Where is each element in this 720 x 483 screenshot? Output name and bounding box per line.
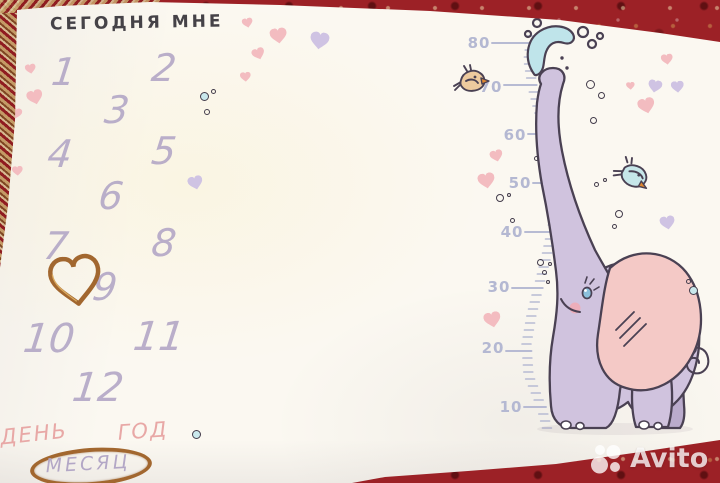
bubble-icon	[542, 270, 547, 275]
ruler-label-30: 30	[488, 278, 511, 296]
heart-icon	[659, 215, 676, 231]
ruler-label-50: 50	[509, 174, 532, 192]
elephant-illustration	[536, 68, 708, 435]
heart-icon	[240, 72, 252, 83]
bubble-icon	[612, 224, 617, 229]
word-month: МЕСЯЦ	[45, 451, 131, 477]
bubble-icon	[598, 92, 605, 99]
bubble-icon	[537, 259, 544, 266]
milestone-blanket: СЕГОДНЯ МНЕ 1 2 3 4 5 6 7 8 9 10 11 12 8…	[0, 0, 720, 483]
water-splash-icon	[525, 19, 603, 75]
heart-icon	[647, 79, 663, 94]
ruler-label-60: 60	[504, 126, 527, 144]
heart-icon	[626, 82, 636, 91]
bubble-icon	[192, 430, 201, 439]
bubble-icon	[546, 280, 550, 284]
milestone-blanket-photo: СЕГОДНЯ МНЕ 1 2 3 4 5 6 7 8 9 10 11 12 8…	[0, 0, 720, 483]
bubble-icon	[211, 89, 216, 94]
heart-icon	[670, 80, 684, 93]
bubble-icon	[507, 193, 511, 197]
bubble-icon	[534, 156, 539, 161]
heart-icon	[660, 53, 673, 66]
heart-icon	[309, 31, 330, 51]
bubble-icon	[686, 279, 691, 284]
bubble-icon	[548, 262, 552, 266]
bubble-icon	[594, 182, 599, 187]
bubble-icon	[590, 117, 597, 124]
bird-icon	[611, 153, 655, 193]
ruler-label-40: 40	[501, 223, 524, 241]
bubble-icon	[603, 178, 607, 182]
bubble-icon	[200, 92, 209, 101]
bubble-icon	[615, 210, 623, 218]
heart-icon	[24, 63, 37, 75]
bubble-icon	[496, 194, 504, 202]
watermark-text: Avito	[630, 443, 708, 474]
bubble-icon	[689, 286, 698, 295]
heart-icon	[477, 172, 497, 191]
avito-logo-icon	[590, 441, 624, 475]
ruler-label-20: 20	[482, 339, 505, 357]
ruler-label-80: 80	[468, 34, 491, 52]
heart-icon	[12, 166, 24, 177]
bubble-icon	[510, 218, 515, 223]
avito-watermark: Avito	[590, 441, 708, 475]
bubble-icon	[586, 80, 595, 89]
ruler-label-10: 10	[500, 398, 523, 416]
growth-chart-scene: 80 70 60 50 40 30 20 10	[0, 0, 720, 483]
word-year: ГОД	[117, 417, 169, 444]
gold-wire-heart-icon	[48, 254, 102, 307]
bubble-icon	[204, 109, 210, 115]
heart-icon	[269, 27, 288, 45]
